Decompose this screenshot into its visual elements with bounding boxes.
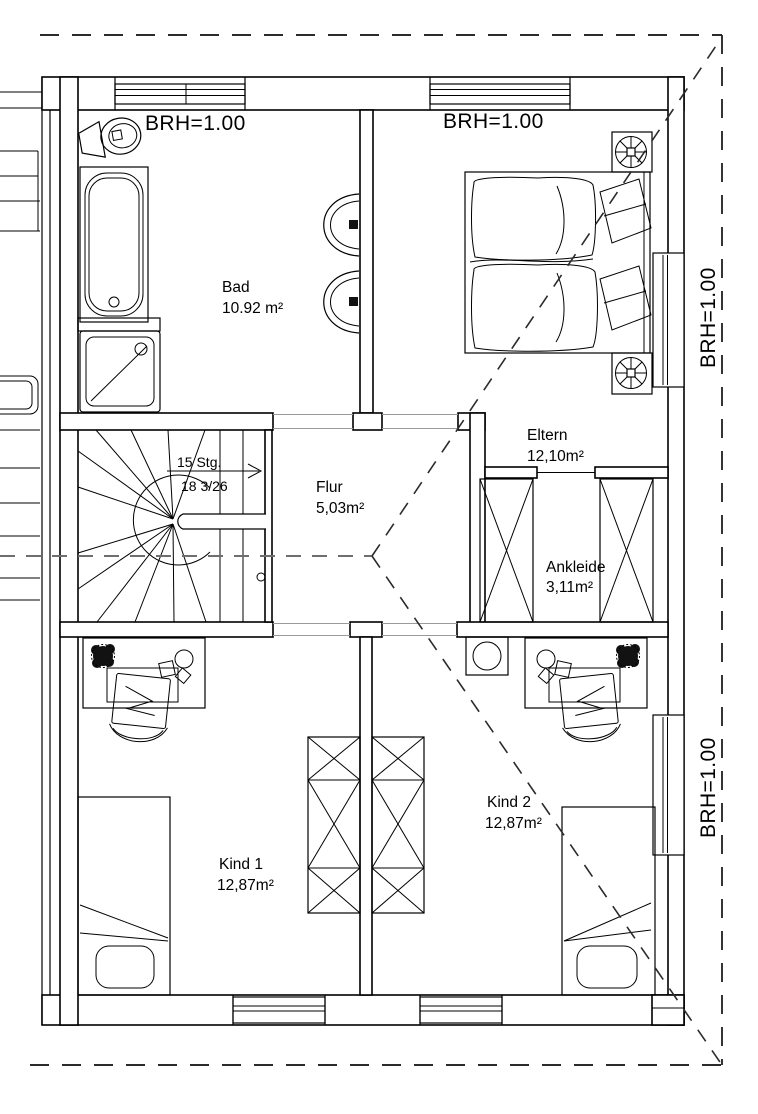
floor-plan-canvas: BRH=1.00 BRH=1.00 BRH=1.00 BRH=1.00 Bad … (0, 0, 758, 1114)
wall-kind1-kind2 (360, 637, 372, 995)
brh-label-right-upper: BRH=1.00 (697, 267, 720, 368)
svg-text:12,10m²: 12,10m² (527, 448, 584, 465)
window-bottom-kind2 (420, 995, 502, 1025)
plant-icon (616, 644, 640, 668)
wall-flur-eltern (470, 413, 485, 625)
svg-text:5,03m²: 5,03m² (316, 500, 364, 517)
svg-text:15 Stg.: 15 Stg. (177, 454, 221, 470)
svg-text:Ankleide: Ankleide (546, 559, 605, 576)
svg-text:12,87m²: 12,87m² (485, 815, 542, 832)
svg-text:Kind 2: Kind 2 (487, 794, 531, 811)
wall-bad-eltern (360, 110, 373, 413)
stair-center-wall (178, 514, 266, 529)
svg-text:Flur: Flur (316, 479, 343, 496)
window-right-eltern (653, 253, 684, 387)
svg-text:12,87m²: 12,87m² (217, 877, 274, 894)
svg-text:Bad: Bad (222, 279, 250, 296)
window-right-kind2 (653, 715, 684, 855)
window-bottom-kind1 (233, 995, 325, 1025)
plant-icon (91, 644, 115, 668)
stairwell-wall (265, 430, 272, 622)
brh-label-top-left: BRH=1.00 (145, 112, 246, 135)
svg-text:3,11m²: 3,11m² (546, 579, 593, 596)
floor-plan-page: BRH=1.00 BRH=1.00 BRH=1.00 BRH=1.00 Bad … (0, 0, 758, 1114)
brh-label-top-right: BRH=1.00 (443, 110, 544, 133)
brh-label-right-lower: BRH=1.00 (697, 737, 720, 838)
svg-text:18 3/26: 18 3/26 (181, 478, 228, 494)
svg-text:Kind 1: Kind 1 (219, 856, 263, 873)
party-wall (60, 77, 78, 1025)
svg-text:Eltern: Eltern (527, 427, 568, 444)
svg-text:10.92 m²: 10.92 m² (222, 300, 283, 317)
